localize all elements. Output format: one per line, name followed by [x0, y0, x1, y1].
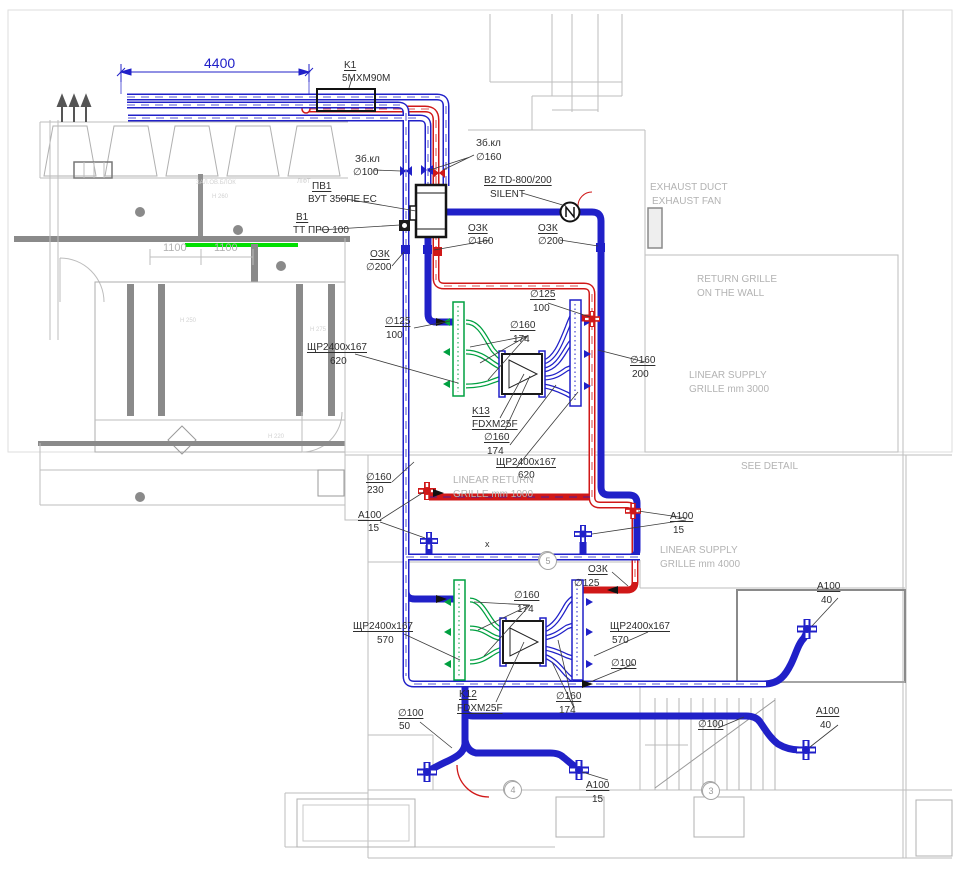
highlighted-wall-segment	[185, 243, 298, 247]
red-diffusers	[418, 311, 641, 519]
ventilation-plan-canvas: 4400K15MXM90MЗб.кл∅100Зб.кл∅160ПВ1ВУТ 35…	[0, 0, 967, 871]
column-dots	[135, 207, 286, 502]
exhaust-wall-grille	[648, 208, 662, 248]
airflow-arrows	[58, 96, 90, 122]
architecture-layer	[8, 10, 952, 858]
red-duct-network	[302, 105, 635, 590]
k13-heat-recovery-zone	[443, 300, 591, 406]
fire-dampers	[401, 243, 605, 256]
v1-duct-fan	[399, 220, 410, 231]
exterior-wall	[14, 236, 350, 242]
stairs	[655, 698, 775, 790]
room-top-right	[737, 590, 905, 682]
plan-drawing	[0, 0, 967, 871]
door-swing-red	[457, 765, 489, 797]
blue-diffusers	[417, 525, 817, 782]
dimension-4400	[117, 64, 313, 94]
blue-duct-network	[127, 97, 807, 770]
k12-heat-recovery-zone	[444, 580, 593, 680]
